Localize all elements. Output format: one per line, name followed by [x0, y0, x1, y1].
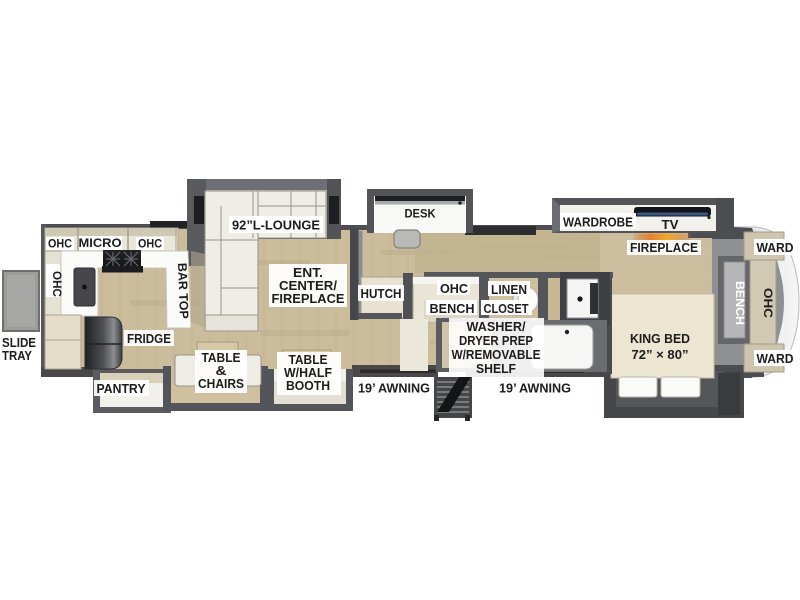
svg-text:OHC: OHC [48, 237, 72, 251]
svg-text:W/HALF: W/HALF [284, 366, 332, 380]
svg-text:ENT.: ENT. [293, 266, 323, 280]
svg-text:KING BED: KING BED [630, 332, 690, 346]
svg-text:PANTRY: PANTRY [97, 382, 147, 396]
svg-text:W/REMOVABLE: W/REMOVABLE [452, 348, 541, 362]
svg-text:TABLE: TABLE [202, 351, 241, 365]
svg-text:LINEN: LINEN [491, 283, 527, 297]
svg-text:BENCH: BENCH [733, 281, 747, 325]
svg-text:OHC: OHC [761, 288, 775, 318]
svg-text:FIREPLACE: FIREPLACE [272, 292, 345, 306]
svg-text:OHC: OHC [440, 282, 468, 296]
svg-text:OHC: OHC [138, 237, 162, 251]
svg-text:TABLE: TABLE [289, 353, 328, 367]
svg-text:CLOSET: CLOSET [484, 302, 529, 316]
svg-text:&: & [216, 364, 227, 378]
svg-text:CHAIRS: CHAIRS [198, 377, 244, 391]
svg-text:HUTCH: HUTCH [361, 287, 402, 301]
svg-text:DRYER PREP: DRYER PREP [459, 334, 533, 348]
svg-text:WARD: WARD [757, 352, 794, 366]
svg-text:SHELF: SHELF [476, 362, 516, 376]
svg-text:WARD: WARD [757, 241, 794, 255]
svg-text:TRAY: TRAY [2, 349, 33, 363]
svg-text:92”L-LOUNGE: 92”L-LOUNGE [232, 218, 320, 233]
svg-text:72” × 80”: 72” × 80” [632, 348, 689, 362]
svg-text:FIREPLACE: FIREPLACE [630, 241, 698, 255]
svg-text:19’ AWNING: 19’ AWNING [358, 382, 430, 396]
svg-text:WARDROBE: WARDROBE [563, 216, 633, 230]
svg-text:FRIDGE: FRIDGE [127, 332, 171, 346]
svg-text:CENTER/: CENTER/ [279, 279, 338, 293]
svg-text:MICRO: MICRO [79, 236, 122, 250]
svg-text:DESK: DESK [405, 207, 436, 221]
svg-text:19’ AWNING: 19’ AWNING [499, 382, 571, 396]
svg-text:BOOTH: BOOTH [286, 379, 330, 393]
svg-text:SLIDE: SLIDE [2, 336, 36, 350]
svg-text:TV: TV [662, 218, 680, 232]
svg-text:BENCH: BENCH [430, 302, 475, 316]
svg-text:WASHER/: WASHER/ [467, 320, 527, 334]
svg-text:OHC: OHC [50, 271, 64, 297]
svg-text:BAR TOP: BAR TOP [175, 263, 191, 319]
